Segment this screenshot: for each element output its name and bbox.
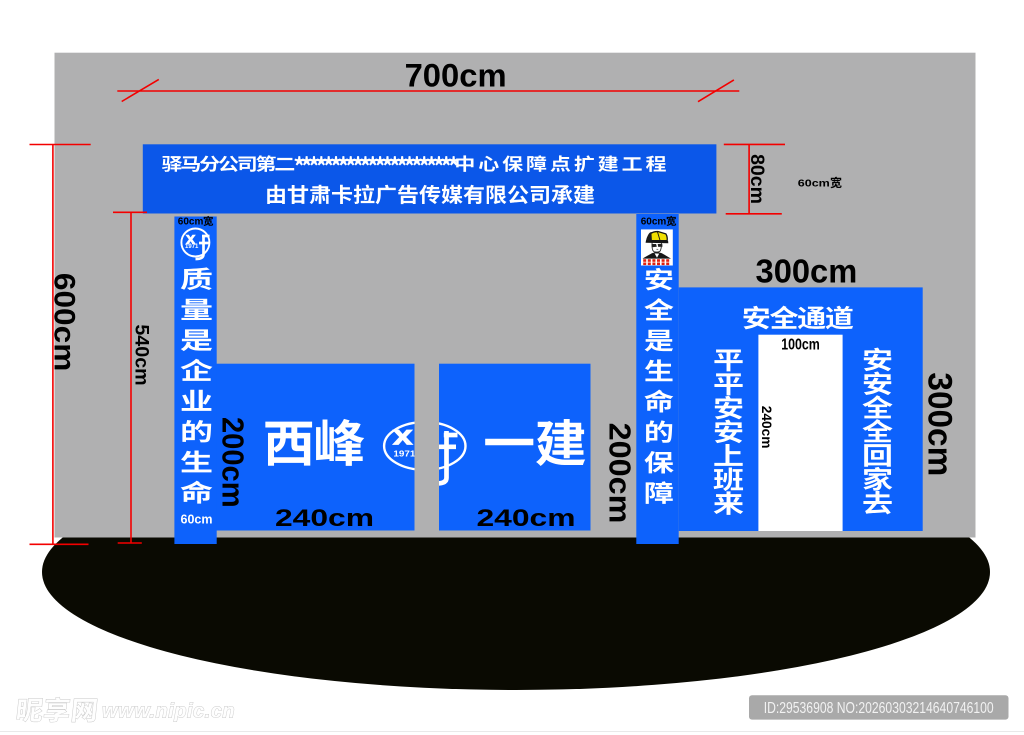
svg-text:x: x <box>393 419 414 450</box>
svg-text:60cm: 60cm <box>178 217 204 228</box>
svg-text:300cm: 300cm <box>920 372 958 476</box>
svg-text:200cm: 200cm <box>215 417 250 508</box>
svg-text:300cm: 300cm <box>756 253 858 290</box>
svg-text:1971: 1971 <box>185 244 199 250</box>
svg-text:60cm: 60cm <box>181 513 213 527</box>
svg-text:ID:29536908 NO:202603032146407: ID:29536908 NO:20260303214640746100 <box>764 700 994 717</box>
svg-text:60cm: 60cm <box>641 217 667 228</box>
svg-text:60cm: 60cm <box>798 177 830 189</box>
svg-text:100cm: 100cm <box>781 337 820 354</box>
svg-text:240cm: 240cm <box>477 505 576 532</box>
svg-text:540cm: 540cm <box>130 324 151 385</box>
svg-text:240cm: 240cm <box>759 406 774 449</box>
svg-text:80cm: 80cm <box>746 154 768 204</box>
svg-text:www.nipic.cn: www.nipic.cn <box>102 701 235 723</box>
svg-text:700cm: 700cm <box>405 58 507 94</box>
svg-text:200cm: 200cm <box>603 423 638 524</box>
svg-text:600cm: 600cm <box>48 273 81 372</box>
svg-text:240cm: 240cm <box>275 505 374 532</box>
svg-text:1971: 1971 <box>393 448 415 458</box>
